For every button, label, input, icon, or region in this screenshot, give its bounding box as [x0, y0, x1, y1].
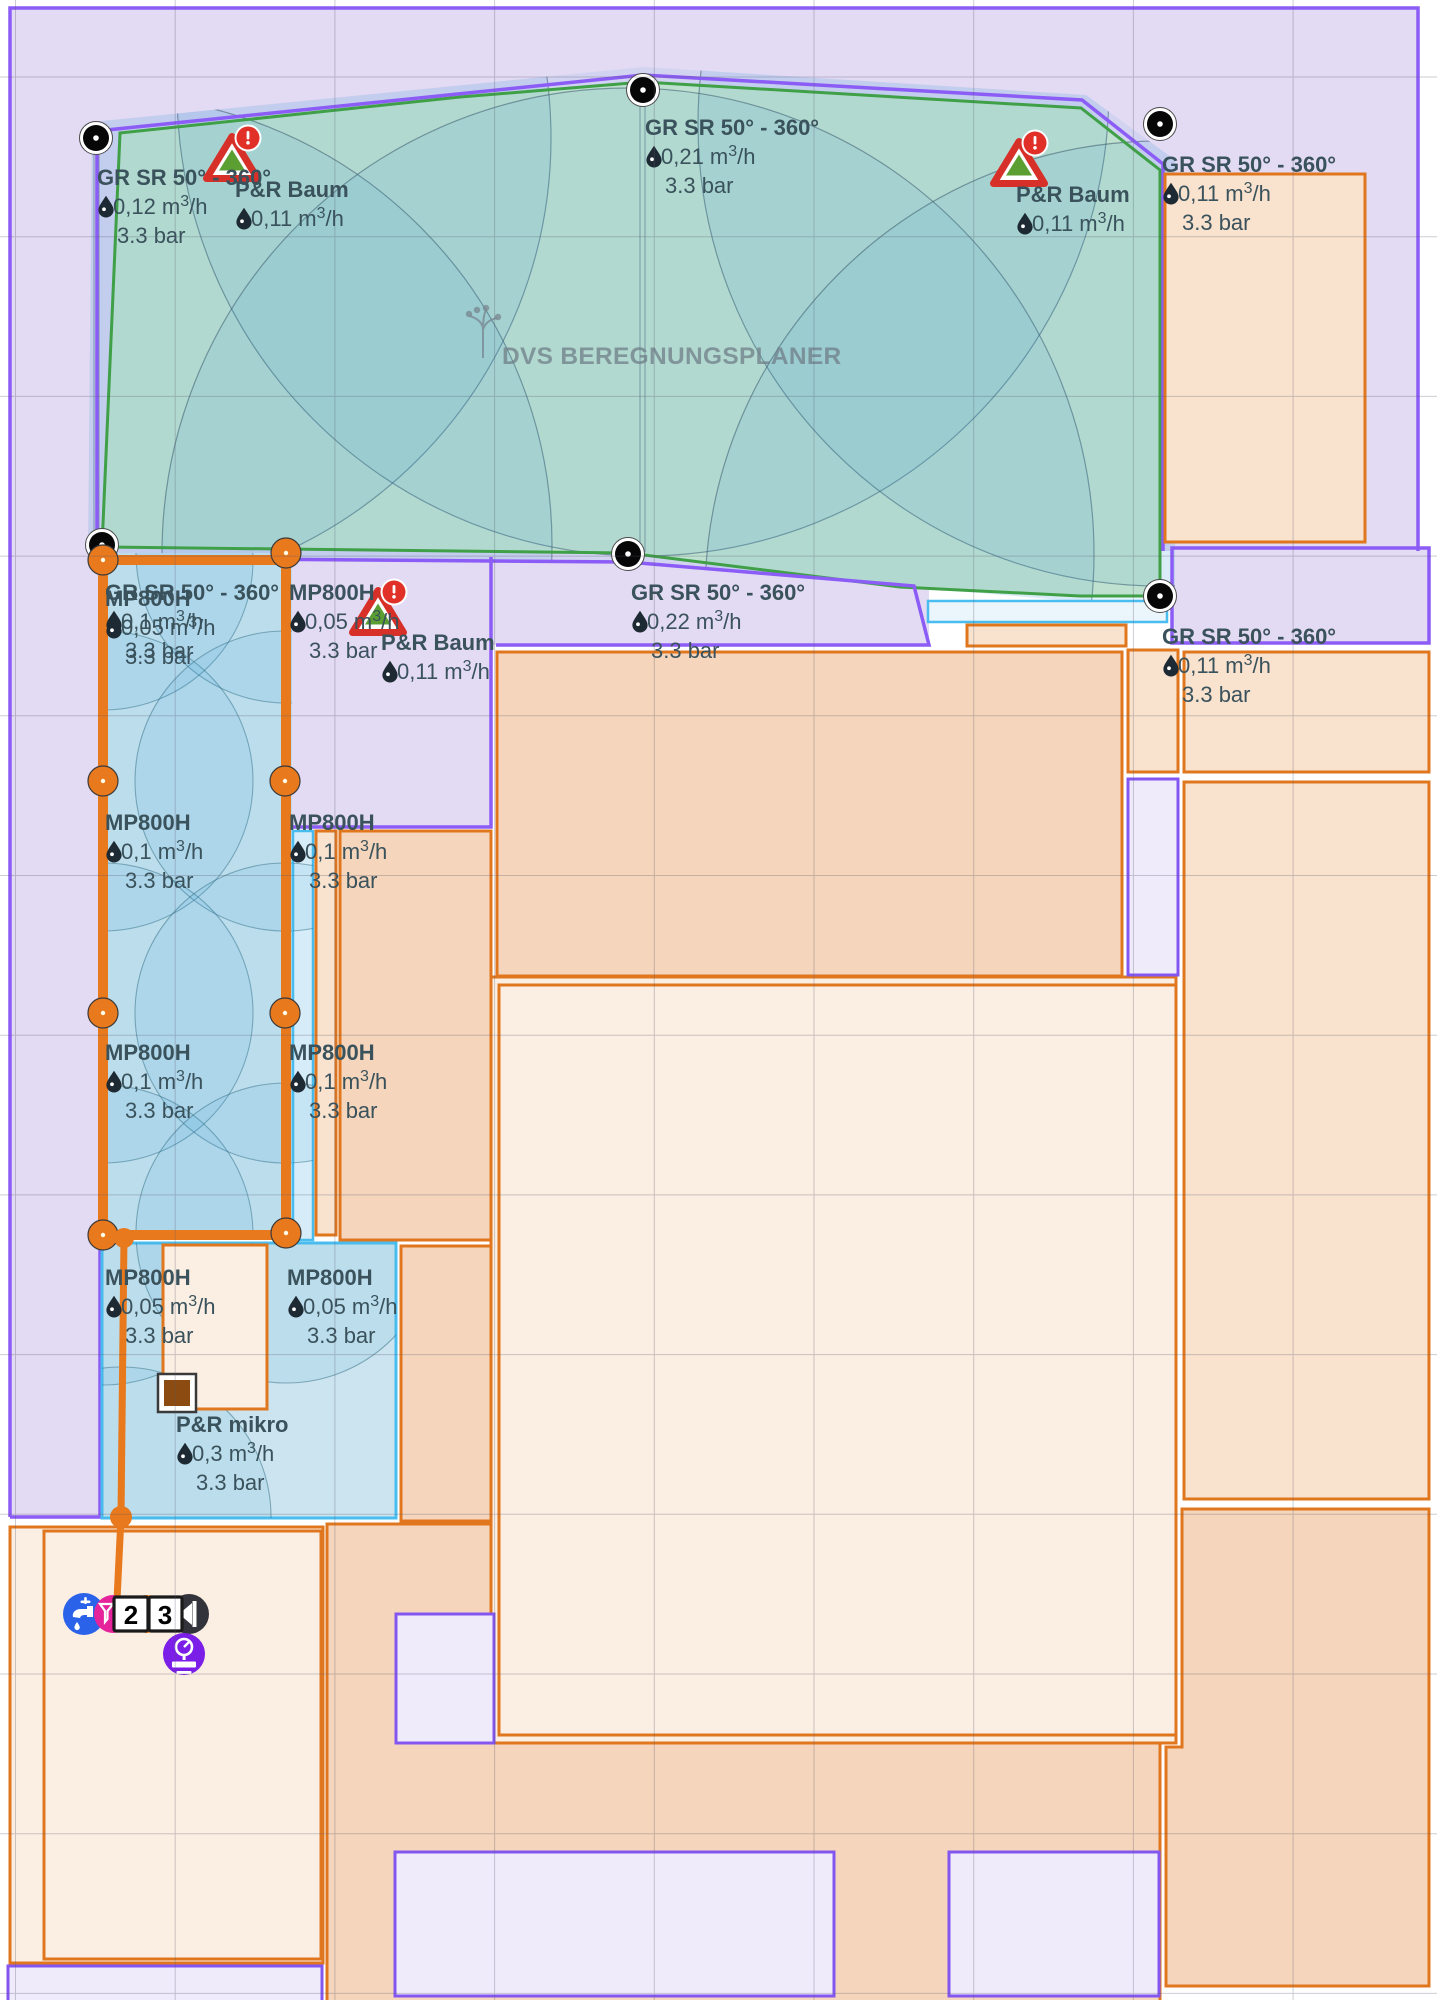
- svg-text:3.3 bar: 3.3 bar: [651, 638, 720, 663]
- svg-text:P&R mikro: P&R mikro: [176, 1412, 288, 1437]
- svg-text:0,1 m3/h: 0,1 m3/h: [305, 838, 387, 864]
- svg-text:3.3 bar: 3.3 bar: [309, 638, 378, 663]
- svg-text:GR SR 50° - 360°: GR SR 50° - 360°: [645, 115, 819, 140]
- svg-text:3.3 bar: 3.3 bar: [1182, 210, 1251, 235]
- svg-text:0,11 m3/h: 0,11 m3/h: [397, 658, 490, 684]
- svg-text:3: 3: [158, 1600, 172, 1630]
- svg-text:P&R Baum: P&R Baum: [235, 177, 349, 202]
- svg-text:MP800H: MP800H: [105, 586, 191, 611]
- svg-text:0,11 m3/h: 0,11 m3/h: [1032, 210, 1125, 236]
- svg-text:3.3 bar: 3.3 bar: [125, 644, 194, 669]
- svg-text:3.3 bar: 3.3 bar: [1182, 682, 1251, 707]
- svg-text:0,22 m3/h: 0,22 m3/h: [647, 608, 742, 634]
- svg-text:GR SR 50° - 360°: GR SR 50° - 360°: [1162, 624, 1336, 649]
- svg-text:P&R Baum: P&R Baum: [1016, 182, 1130, 207]
- svg-text:3.3 bar: 3.3 bar: [309, 868, 378, 893]
- svg-text:3.3 bar: 3.3 bar: [665, 173, 734, 198]
- svg-text:0,11 m3/h: 0,11 m3/h: [1178, 652, 1271, 678]
- svg-text:MP800H: MP800H: [105, 1265, 191, 1290]
- svg-text:MP800H: MP800H: [289, 810, 375, 835]
- svg-text:0,05 m3/h: 0,05 m3/h: [121, 1293, 216, 1319]
- svg-text:MP800H: MP800H: [289, 1040, 375, 1065]
- svg-text:MP800H: MP800H: [105, 1040, 191, 1065]
- svg-text:0,12 m3/h: 0,12 m3/h: [113, 193, 208, 219]
- svg-text:0,3 m3/h: 0,3 m3/h: [192, 1440, 274, 1466]
- svg-text:3.3 bar: 3.3 bar: [125, 868, 194, 893]
- svg-text:P&R Baum: P&R Baum: [381, 630, 495, 655]
- svg-text:3.3 bar: 3.3 bar: [309, 1098, 378, 1123]
- svg-text:0,05 m3/h: 0,05 m3/h: [121, 614, 216, 640]
- svg-text:0,11 m3/h: 0,11 m3/h: [1178, 180, 1271, 206]
- svg-text:0,05 m3/h: 0,05 m3/h: [303, 1293, 398, 1319]
- svg-text:3.3 bar: 3.3 bar: [196, 1470, 265, 1495]
- svg-text:0,21 m3/h: 0,21 m3/h: [661, 143, 756, 169]
- svg-text:2: 2: [124, 1600, 138, 1630]
- svg-text:MP800H: MP800H: [289, 580, 375, 605]
- svg-text:DVS BEREGNUNGSPLANER: DVS BEREGNUNGSPLANER: [502, 343, 842, 370]
- svg-text:0,1 m3/h: 0,1 m3/h: [121, 1068, 203, 1094]
- svg-text:GR SR 50° - 360°: GR SR 50° - 360°: [1162, 152, 1336, 177]
- svg-text:3.3 bar: 3.3 bar: [125, 1098, 194, 1123]
- svg-text:0,11 m3/h: 0,11 m3/h: [251, 205, 344, 231]
- svg-text:MP800H: MP800H: [105, 810, 191, 835]
- svg-text:GR SR 50° - 360°: GR SR 50° - 360°: [631, 580, 805, 605]
- svg-text:3.3 bar: 3.3 bar: [125, 1323, 194, 1348]
- svg-text:0,1 m3/h: 0,1 m3/h: [305, 1068, 387, 1094]
- svg-text:3.3 bar: 3.3 bar: [307, 1323, 376, 1348]
- svg-text:MP800H: MP800H: [287, 1265, 373, 1290]
- svg-text:0,1 m3/h: 0,1 m3/h: [121, 838, 203, 864]
